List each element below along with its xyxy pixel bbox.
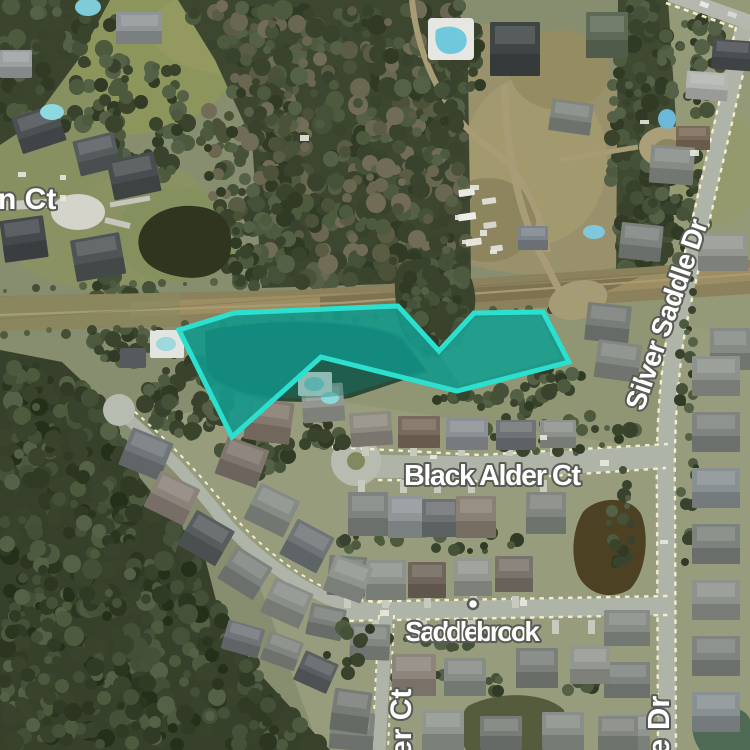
svg-text:er Ct: er Ct bbox=[385, 689, 418, 750]
svg-text:e Dr: e Dr bbox=[641, 696, 676, 750]
svg-text:Saddlebrook: Saddlebrook bbox=[405, 616, 540, 647]
svg-text:n Ct: n Ct bbox=[0, 183, 56, 216]
svg-text:Black Alder Ct: Black Alder Ct bbox=[404, 460, 581, 492]
